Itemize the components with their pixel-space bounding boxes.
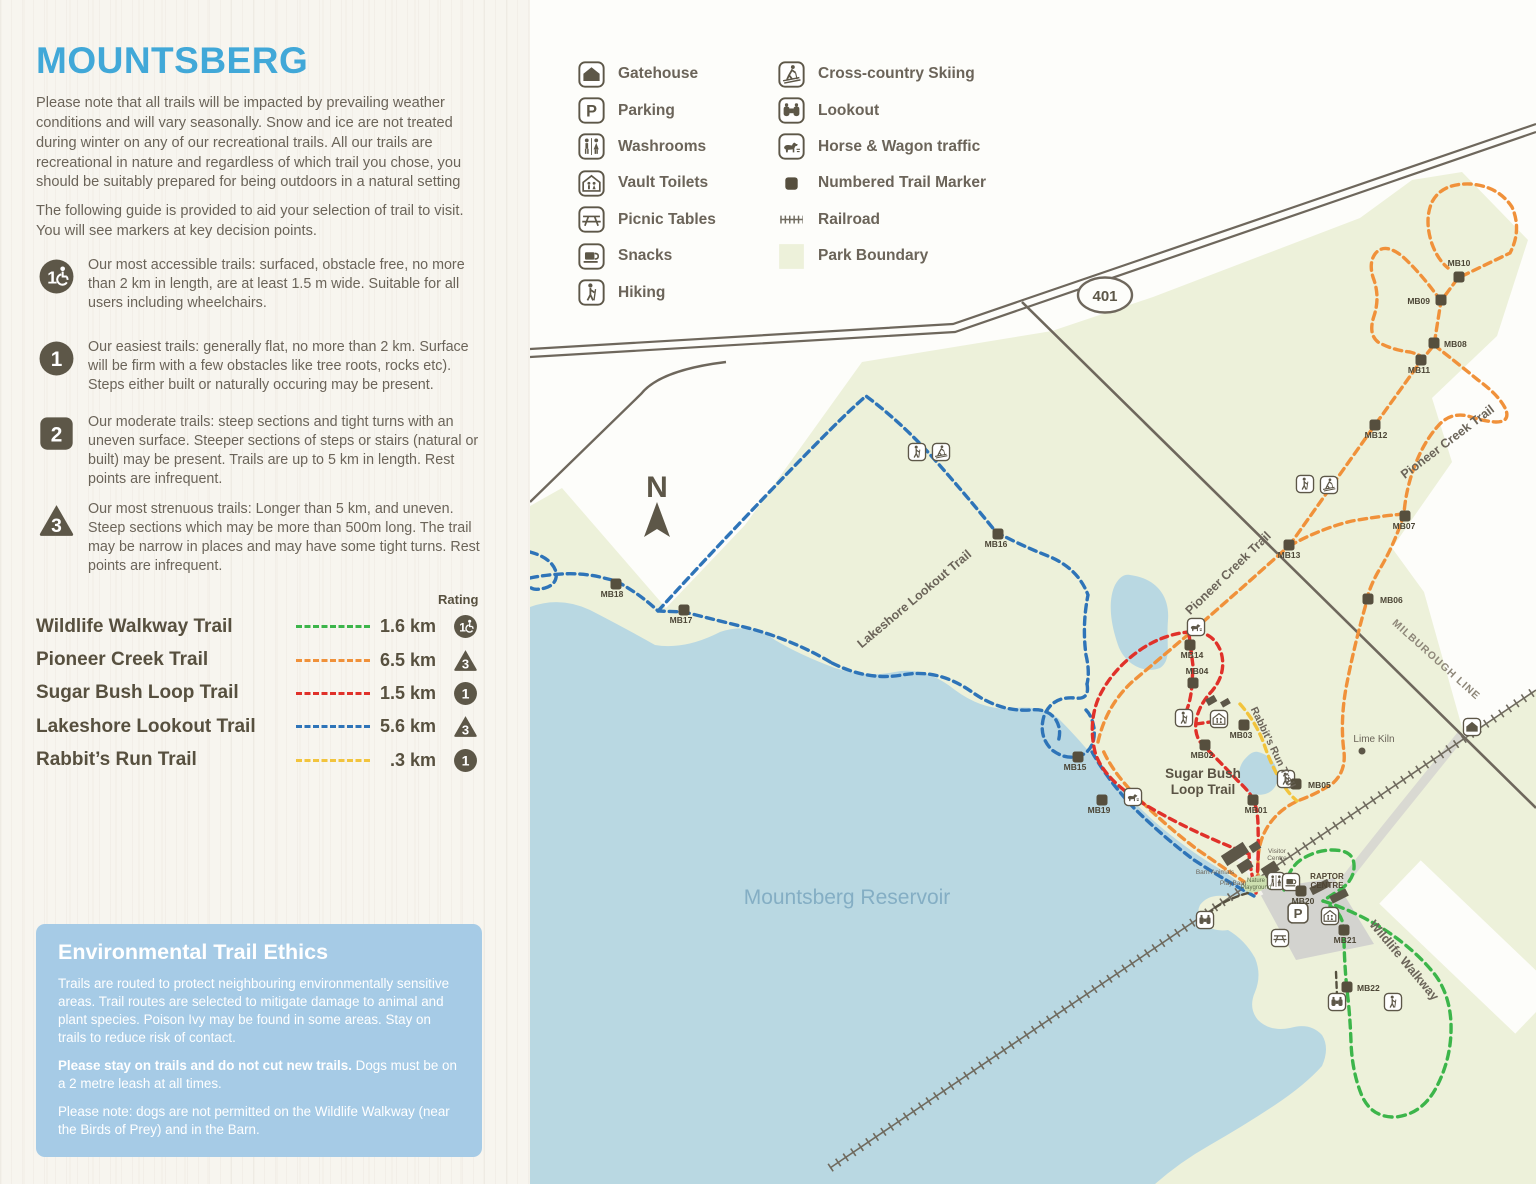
north-arrow-icon <box>644 502 670 537</box>
legend-item-ski: Cross-country Skiing <box>778 56 986 92</box>
trail-marker-label: MB01 <box>1245 805 1268 815</box>
legend-label: Numbered Trail Marker <box>818 174 986 192</box>
trail-marker-label: MB15 <box>1064 762 1087 772</box>
map-label: CENTRE <box>1311 881 1345 890</box>
trail-marker-label: MB13 <box>1278 550 1301 560</box>
trail-name: Wildlife Walkway Trail <box>36 616 296 638</box>
ski-icon <box>778 61 805 88</box>
trail-marker-MB03 <box>1239 720 1250 731</box>
washrooms-icon <box>578 133 605 160</box>
legend-label: Parking <box>618 102 675 120</box>
trail-marker-label: MB18 <box>601 589 624 599</box>
map-label: Lime Kiln <box>1353 734 1394 745</box>
rating-3-icon <box>453 648 478 673</box>
rating-3-icon <box>38 502 75 539</box>
trail-marker-label: MB09 <box>1407 296 1430 306</box>
trail-marker-label: MB12 <box>1365 430 1388 440</box>
rating-1-icon <box>453 681 478 706</box>
hiking-icon <box>578 279 605 306</box>
map-label: N <box>646 471 668 504</box>
trail-dash-swatch <box>296 659 370 662</box>
legend-column-1: GatehouseParkingWashroomsVault ToiletsPi… <box>578 56 716 311</box>
ethics-title: Environmental Trail Ethics <box>58 940 460 965</box>
trail-marker-label: MB02 <box>1191 750 1214 760</box>
gatehouse-icon <box>578 61 605 88</box>
trail-marker-label: MB08 <box>1444 339 1467 349</box>
trail-marker-label: MB04 <box>1186 666 1209 676</box>
difficulty-item-access: Our most accessible trails: surfaced, ob… <box>36 256 488 313</box>
trail-marker-label: MB11 <box>1408 365 1430 375</box>
legend-label: Snacks <box>618 247 672 265</box>
trail-marker-icon <box>778 170 805 197</box>
park-boundary-swatch <box>778 243 805 270</box>
trail-marker-label: MB07 <box>1393 521 1416 531</box>
ski-icon <box>1320 476 1337 493</box>
map-label: 401 <box>1092 288 1117 305</box>
legend-item-gatehouse: Gatehouse <box>578 56 716 92</box>
hiking-icon <box>908 443 925 460</box>
trail-row: Wildlife Walkway Trail1.6 km <box>36 610 488 643</box>
gatehouse-icon <box>1463 718 1480 735</box>
trail-name: Rabbit’s Run Trail <box>36 749 296 771</box>
map-label: Playground <box>1241 885 1271 891</box>
trail-list: Wildlife Walkway Trail1.6 kmPioneer Cree… <box>36 610 488 777</box>
legend-item-vault-toilets: Vault Toilets <box>578 165 716 201</box>
rating-1-icon <box>453 748 478 773</box>
trail-distance: 6.5 km <box>378 650 442 671</box>
lime-kiln-dot <box>1359 748 1366 755</box>
page-title: MOUNTSBERG <box>36 40 308 82</box>
hiking-icon <box>1384 993 1401 1010</box>
trail-dash-swatch <box>296 625 370 628</box>
legend-label: Lookout <box>818 102 879 120</box>
parking-icon <box>1288 903 1308 923</box>
trail-distance: 1.6 km <box>378 616 442 637</box>
trail-marker-label: MB10 <box>1448 258 1471 268</box>
legend-label: Vault Toilets <box>618 174 708 192</box>
trail-distance: 1.5 km <box>378 683 442 704</box>
trail-dash-swatch <box>296 692 370 695</box>
info-panel: MOUNTSBERG Please note that all trails w… <box>0 0 530 1184</box>
trail-marker-label: MB21 <box>1334 935 1357 945</box>
trail-row: Pioneer Creek Trail6.5 km <box>36 643 488 676</box>
trail-distance: .3 km <box>378 750 442 771</box>
trail-marker-label: MB05 <box>1308 780 1331 790</box>
picnic-icon <box>1271 929 1288 946</box>
horse-icon <box>778 133 805 160</box>
legend-item-lookout: Lookout <box>778 92 986 128</box>
trail-row: Lakeshore Lookout Trail5.6 km <box>36 710 488 743</box>
ski-icon <box>932 443 949 460</box>
trail-marker-MB08 <box>1429 338 1440 349</box>
intro-paragraph-2: The following guide is provided to aid y… <box>36 202 488 242</box>
horse-icon <box>1187 618 1204 635</box>
trail-marker-label: MB06 <box>1380 595 1403 605</box>
rating-1-icon <box>38 340 75 377</box>
trail-marker-MB19 <box>1097 795 1108 806</box>
trail-marker-label: MB19 <box>1088 805 1111 815</box>
trail-marker-MB21 <box>1339 925 1350 936</box>
difficulty-text: Our easiest trails: generally flat, no m… <box>88 338 488 395</box>
lookout-icon <box>1328 993 1345 1010</box>
trail-marker-MB22 <box>1342 982 1353 993</box>
map-label: Barn Animals <box>1196 869 1235 876</box>
trail-marker-MB11 <box>1416 355 1427 366</box>
legend-item-picnic: Picnic Tables <box>578 202 716 238</box>
map-label: Nature <box>1247 878 1266 884</box>
legend-label: Park Boundary <box>818 247 928 265</box>
horse-icon <box>1124 788 1141 805</box>
trail-marker-label: MB22 <box>1357 983 1380 993</box>
ethics-paragraph-3: Please note: dogs are not permitted on t… <box>58 1103 460 1139</box>
trail-marker-MB20 <box>1296 886 1307 897</box>
legend-label: Washrooms <box>618 138 706 156</box>
legend-label: Horse & Wagon traffic <box>818 138 980 156</box>
map-label: Sugar Bush <box>1165 766 1241 781</box>
difficulty-text: Our moderate trails: steep sections and … <box>88 413 488 489</box>
trail-marker-MB15 <box>1073 752 1084 763</box>
legend-item-marker: Numbered Trail Marker <box>778 165 986 201</box>
trail-marker-MB04 <box>1188 678 1199 689</box>
ethics-paragraph-2: Please stay on trails and do not cut new… <box>58 1057 460 1093</box>
legend-column-2: Cross-country SkiingLookoutHorse & Wagon… <box>778 56 986 274</box>
trail-ethics-box: Environmental Trail Ethics Trails are ro… <box>36 924 482 1157</box>
ethics-paragraph-1: Trails are routed to protect neighbourin… <box>58 975 460 1047</box>
rating-3-icon <box>453 714 478 739</box>
side-road <box>530 362 726 502</box>
trail-marker-MB10 <box>1454 272 1465 283</box>
map-label: Loop Trail <box>1171 782 1236 797</box>
trail-marker-MB09 <box>1436 295 1447 306</box>
trail-dash-swatch <box>296 759 370 762</box>
trail-marker-label: MB14 <box>1181 650 1204 660</box>
trail-dash-swatch <box>296 725 370 728</box>
difficulty-item-2: Our moderate trails: steep sections and … <box>36 413 488 489</box>
legend-item-horse: Horse & Wagon traffic <box>778 129 986 165</box>
rating-2-icon <box>38 415 75 452</box>
trail-row: Sugar Bush Loop Trail1.5 km <box>36 677 488 710</box>
rating-access-icon <box>38 258 75 295</box>
trail-distance: 5.6 km <box>378 716 442 737</box>
trail-marker-MB01 <box>1248 795 1259 806</box>
lookout-icon <box>1196 911 1213 928</box>
rating-column-header: Rating <box>438 592 478 607</box>
trail-marker-MB06 <box>1363 594 1374 605</box>
hiking-icon <box>1296 475 1313 492</box>
legend-item-washrooms: Washrooms <box>578 129 716 165</box>
trail-marker-MB18 <box>611 579 622 590</box>
hiking-icon <box>1175 709 1192 726</box>
trail-name: Pioneer Creek Trail <box>36 649 296 671</box>
map-label: Mountsberg Reservoir <box>744 886 951 909</box>
map-label: Centre <box>1267 855 1287 862</box>
legend-label: Picnic Tables <box>618 211 716 229</box>
vault-toilets-icon <box>1210 710 1227 727</box>
difficulty-item-1: Our easiest trails: generally flat, no m… <box>36 338 488 395</box>
trail-name: Sugar Bush Loop Trail <box>36 682 296 704</box>
parking-icon <box>578 97 605 124</box>
map-label: Visitor <box>1268 848 1287 855</box>
legend-label: Cross-country Skiing <box>818 65 975 83</box>
trail-marker-label: MB17 <box>670 615 693 625</box>
trail-row: Rabbit’s Run Trail.3 km <box>36 744 488 777</box>
trail-marker-MB07 <box>1400 511 1411 522</box>
vault-toilets-icon <box>578 170 605 197</box>
snacks-icon <box>578 243 605 270</box>
difficulty-text: Our most accessible trails: surfaced, ob… <box>88 256 488 313</box>
trail-marker-MB16 <box>993 529 1004 540</box>
vault-toilets-icon <box>1321 907 1338 924</box>
legend-item-hiking: Hiking <box>578 274 716 310</box>
legend-item-snacks: Snacks <box>578 238 716 274</box>
intro-paragraph-1: Please note that all trails will be impa… <box>36 94 488 193</box>
trail-marker-MB14 <box>1185 640 1196 651</box>
legend-item-boundary: Park Boundary <box>778 238 986 274</box>
trail-name: Lakeshore Lookout Trail <box>36 716 296 738</box>
difficulty-text: Our most strenuous trails: Longer than 5… <box>88 500 488 576</box>
legend-label: Gatehouse <box>618 65 698 83</box>
legend-item-railroad: Railroad <box>778 202 986 238</box>
lookout-icon <box>778 97 805 124</box>
railroad-icon <box>778 206 805 233</box>
trail-marker-label: MB03 <box>1230 730 1253 740</box>
trail-marker-MB12 <box>1370 420 1381 431</box>
map-label: RAPTOR <box>1310 872 1344 881</box>
difficulty-item-3: Our most strenuous trails: Longer than 5… <box>36 500 488 576</box>
legend-label: Hiking <box>618 284 665 302</box>
trail-marker-MB17 <box>679 605 690 616</box>
rating-access-icon <box>453 614 478 639</box>
trail-marker-label: MB16 <box>985 539 1008 549</box>
legend-item-parking: Parking <box>578 92 716 128</box>
picnic-icon <box>578 206 605 233</box>
trail-marker-MB02 <box>1200 740 1211 751</box>
trail-marker-MB13 <box>1284 540 1295 551</box>
trail-marker-label: MB20 <box>1292 896 1315 906</box>
legend-label: Railroad <box>818 211 880 229</box>
